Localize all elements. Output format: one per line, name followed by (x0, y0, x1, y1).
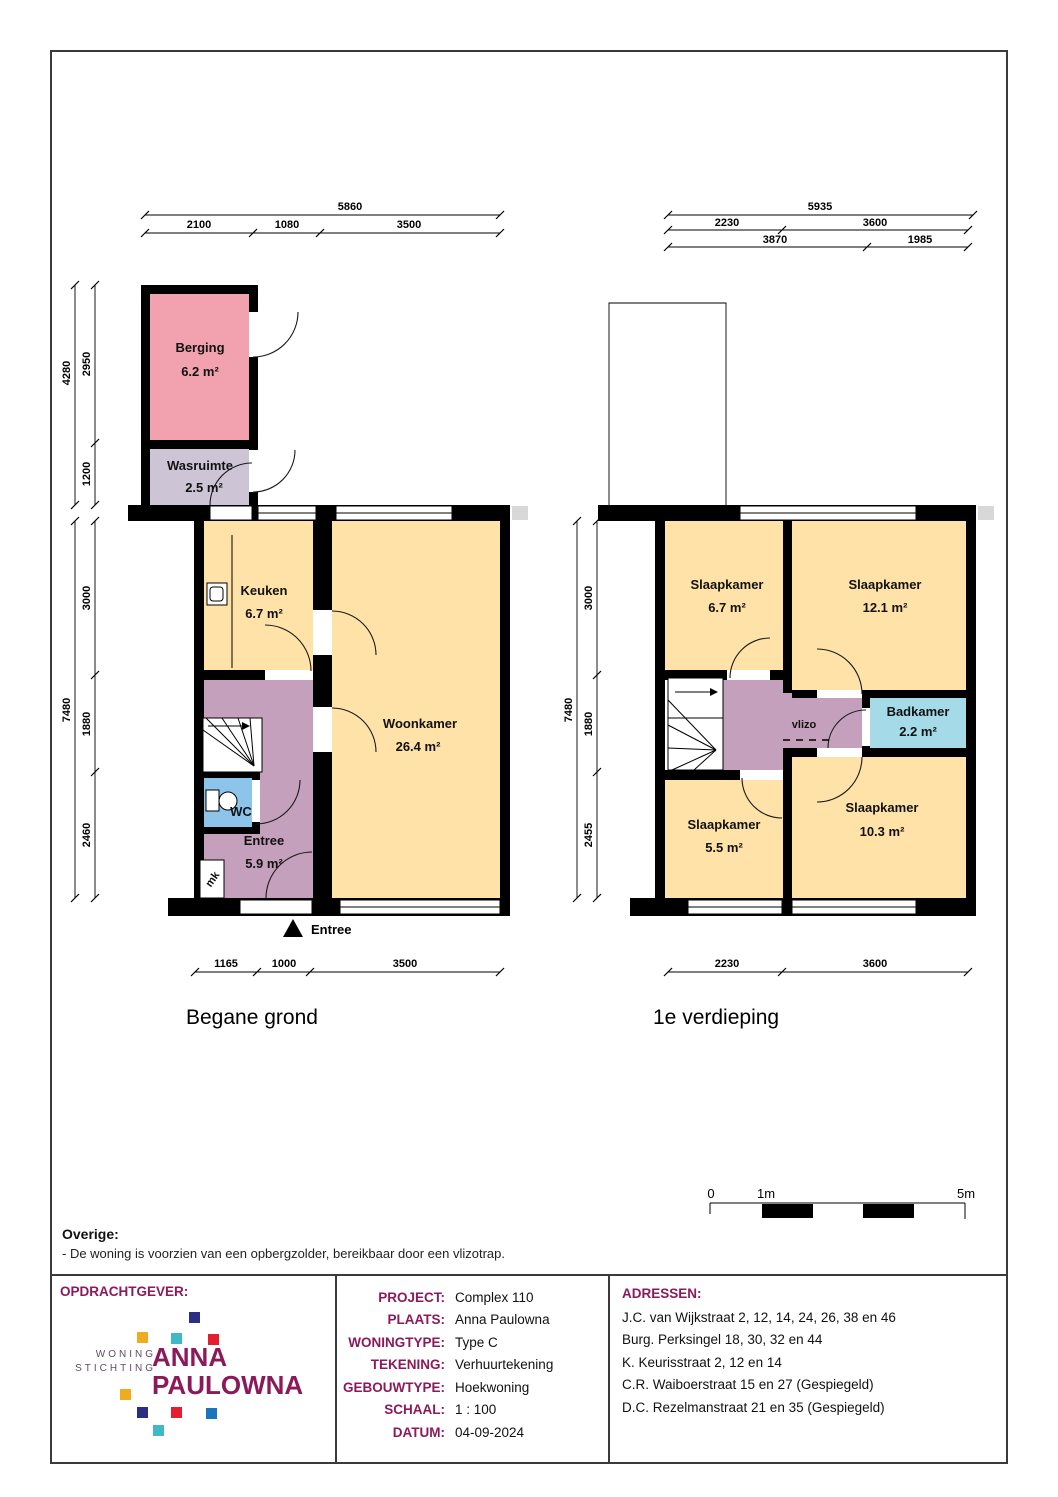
svg-text:7480: 7480 (563, 698, 575, 722)
scale-1m: 1m (757, 1186, 775, 1201)
logo-square-teal (153, 1425, 164, 1436)
svg-text:3000: 3000 (583, 586, 595, 610)
field-project: PROJECT: Complex 110 (337, 1286, 608, 1309)
door-gap (727, 670, 770, 680)
logo-stichting-text: STICHTING (75, 1363, 156, 1374)
svg-text:1165: 1165 (214, 958, 238, 970)
scale-bar: 0 1m 5m (707, 1186, 975, 1219)
logo-paulowna-text: PAULOWNA (152, 1372, 303, 1398)
svg-text:2460: 2460 (81, 823, 93, 847)
logo-square-yellow (120, 1389, 131, 1400)
ground-floor-title: Begane grond (186, 1006, 318, 1029)
logo-square-blue (206, 1408, 217, 1419)
badkamer-area: 2.2 m² (899, 724, 937, 739)
entrance-marker: Entree (283, 919, 351, 937)
entree-area: 5.9 m² (245, 856, 283, 871)
door-gap (249, 312, 258, 357)
scale-5m: 5m (957, 1186, 975, 1201)
logo-square-yellow (137, 1332, 148, 1343)
keuken-label: Keuken (241, 583, 288, 598)
svg-text:3000: 3000 (81, 586, 93, 610)
room-slaapkamer-3 (665, 780, 783, 898)
meter-cupboard: mk (200, 860, 224, 898)
entrance-arrow-icon (283, 919, 303, 937)
address-line: Burg. Perksingel 18, 30, 32 en 44 (622, 1329, 1006, 1351)
slaapkamer2-area: 12.1 m² (863, 600, 908, 615)
door-gap (313, 707, 332, 752)
door-gap (817, 690, 862, 698)
svg-text:4280: 4280 (61, 361, 73, 385)
title-block-project-info: PROJECT: Complex 110 PLAATS: Anna Paulow… (337, 1276, 610, 1462)
notes: Overige: - De woning is voorzien van een… (62, 1226, 862, 1261)
room-slaapkamer-1 (665, 521, 783, 670)
svg-text:1200: 1200 (81, 462, 93, 486)
first-floor-stairs (668, 678, 723, 770)
field-datum: DATUM: 04-09-2024 (337, 1421, 608, 1444)
title-block-client: OPDRACHTGEVER: WONING STICHTING ANNA PAU… (52, 1276, 337, 1462)
slaapkamer2-label: Slaapkamer (849, 577, 922, 592)
wasruimte-label: Wasruimte (167, 458, 233, 473)
entrance-marker-label: Entree (311, 922, 351, 937)
slaapkamer3-area: 5.5 m² (705, 840, 743, 855)
svg-text:1985: 1985 (908, 234, 932, 246)
svg-text:3500: 3500 (393, 958, 417, 970)
address-line: C.R. Waiboerstraat 15 en 27 (Gespiegeld) (622, 1374, 1006, 1396)
address-line: D.C. Rezelmanstraat 21 en 35 (Gespiegeld… (622, 1397, 1006, 1419)
svg-text:2100: 2100 (187, 219, 211, 231)
wasruimte-area: 2.5 m² (185, 480, 223, 495)
slaapkamer4-area: 10.3 m² (860, 824, 905, 839)
svg-text:1000: 1000 (272, 958, 296, 970)
door-gap (817, 748, 862, 757)
first-floor-plan: Slaapkamer 6.7 m² Slaapkamer 12.1 m² Bad… (563, 201, 994, 1029)
ground-floor-plan: mk Berging 6.2 m² Wasruimte 2.5 m² Keuke… (61, 201, 528, 1029)
notes-item: - De woning is voorzien van een opbergzo… (62, 1246, 862, 1261)
room-woonkamer (332, 521, 500, 898)
svg-text:5935: 5935 (808, 201, 832, 213)
slaapkamer1-label: Slaapkamer (691, 577, 764, 592)
svg-text:3600: 3600 (863, 958, 887, 970)
wc-label: WC (230, 804, 252, 819)
opdrachtgever-label: OPDRACHTGEVER: (60, 1284, 188, 1299)
svg-text:7480: 7480 (61, 698, 73, 722)
anna-paulowna-logo: WONING STICHTING ANNA PAULOWNA (62, 1304, 327, 1444)
svg-text:3600: 3600 (863, 217, 887, 229)
field-plaats: PLAATS: Anna Paulowna (337, 1309, 608, 1332)
svg-text:3500: 3500 (397, 219, 421, 231)
first-floor-title: 1e verdieping (653, 1006, 779, 1029)
title-block-addresses: ADRESSEN: J.C. van Wijkstraat 2, 12, 14,… (610, 1276, 1006, 1462)
svg-text:2950: 2950 (81, 352, 93, 376)
floorplan-sheet: mk Berging 6.2 m² Wasruimte 2.5 m² Keuke… (0, 0, 1058, 1497)
svg-text:2455: 2455 (583, 823, 595, 847)
logo-square-red (171, 1407, 182, 1418)
door-gap (252, 780, 260, 822)
address-line: J.C. van Wijkstraat 2, 12, 14, 24, 26, 3… (622, 1307, 1006, 1329)
svg-text:1080: 1080 (275, 219, 299, 231)
keuken-area: 6.7 m² (245, 606, 283, 621)
vlizo-label: vlizo (792, 719, 817, 731)
field-tekening: TEKENING: Verhuurtekening (337, 1354, 608, 1377)
logo-square-navy (189, 1312, 200, 1323)
badkamer-label: Badkamer (887, 704, 950, 719)
door-gap (249, 450, 258, 492)
logo-anna-text: ANNA (152, 1344, 227, 1370)
woonkamer-area: 26.4 m² (396, 739, 441, 754)
svg-text:1880: 1880 (583, 712, 595, 736)
logo-woning-text: WONING (96, 1349, 156, 1360)
woonkamer-label: Woonkamer (383, 716, 457, 731)
scale-0: 0 (707, 1186, 714, 1201)
entree-label: Entree (244, 833, 284, 848)
door-gap (740, 770, 783, 780)
berging-area: 6.2 m² (181, 364, 219, 379)
adressen-label: ADRESSEN: (622, 1286, 1006, 1301)
field-woningtype: WONINGTYPE: Type C (337, 1331, 608, 1354)
address-line: K. Keurisstraat 2, 12 en 14 (622, 1352, 1006, 1374)
notes-header: Overige: (62, 1226, 862, 1242)
title-block: OPDRACHTGEVER: WONING STICHTING ANNA PAU… (50, 1274, 1008, 1464)
svg-text:2230: 2230 (715, 217, 739, 229)
berging-label: Berging (175, 340, 224, 355)
svg-text:1880: 1880 (81, 712, 93, 736)
field-schaal: SCHAAL: 1 : 100 (337, 1399, 608, 1422)
slaapkamer3-label: Slaapkamer (688, 817, 761, 832)
shed-outline (609, 303, 726, 505)
slaapkamer1-area: 6.7 m² (708, 600, 746, 615)
svg-text:2230: 2230 (715, 958, 739, 970)
floorplan-drawing: mk Berging 6.2 m² Wasruimte 2.5 m² Keuke… (0, 0, 1058, 1280)
room-overloop (723, 680, 783, 770)
field-gebouwtype: GEBOUWTYPE: Hoekwoning (337, 1376, 608, 1399)
slaapkamer4-label: Slaapkamer (846, 800, 919, 815)
svg-text:5860: 5860 (338, 201, 362, 213)
door-gap (313, 610, 332, 655)
back-door-threshold (210, 506, 252, 520)
front-door-threshold (240, 900, 312, 914)
logo-square-navy (137, 1407, 148, 1418)
door-gap (862, 708, 870, 746)
door-gap (265, 670, 313, 680)
ground-floor-stairs (203, 718, 262, 772)
svg-text:3870: 3870 (763, 234, 787, 246)
